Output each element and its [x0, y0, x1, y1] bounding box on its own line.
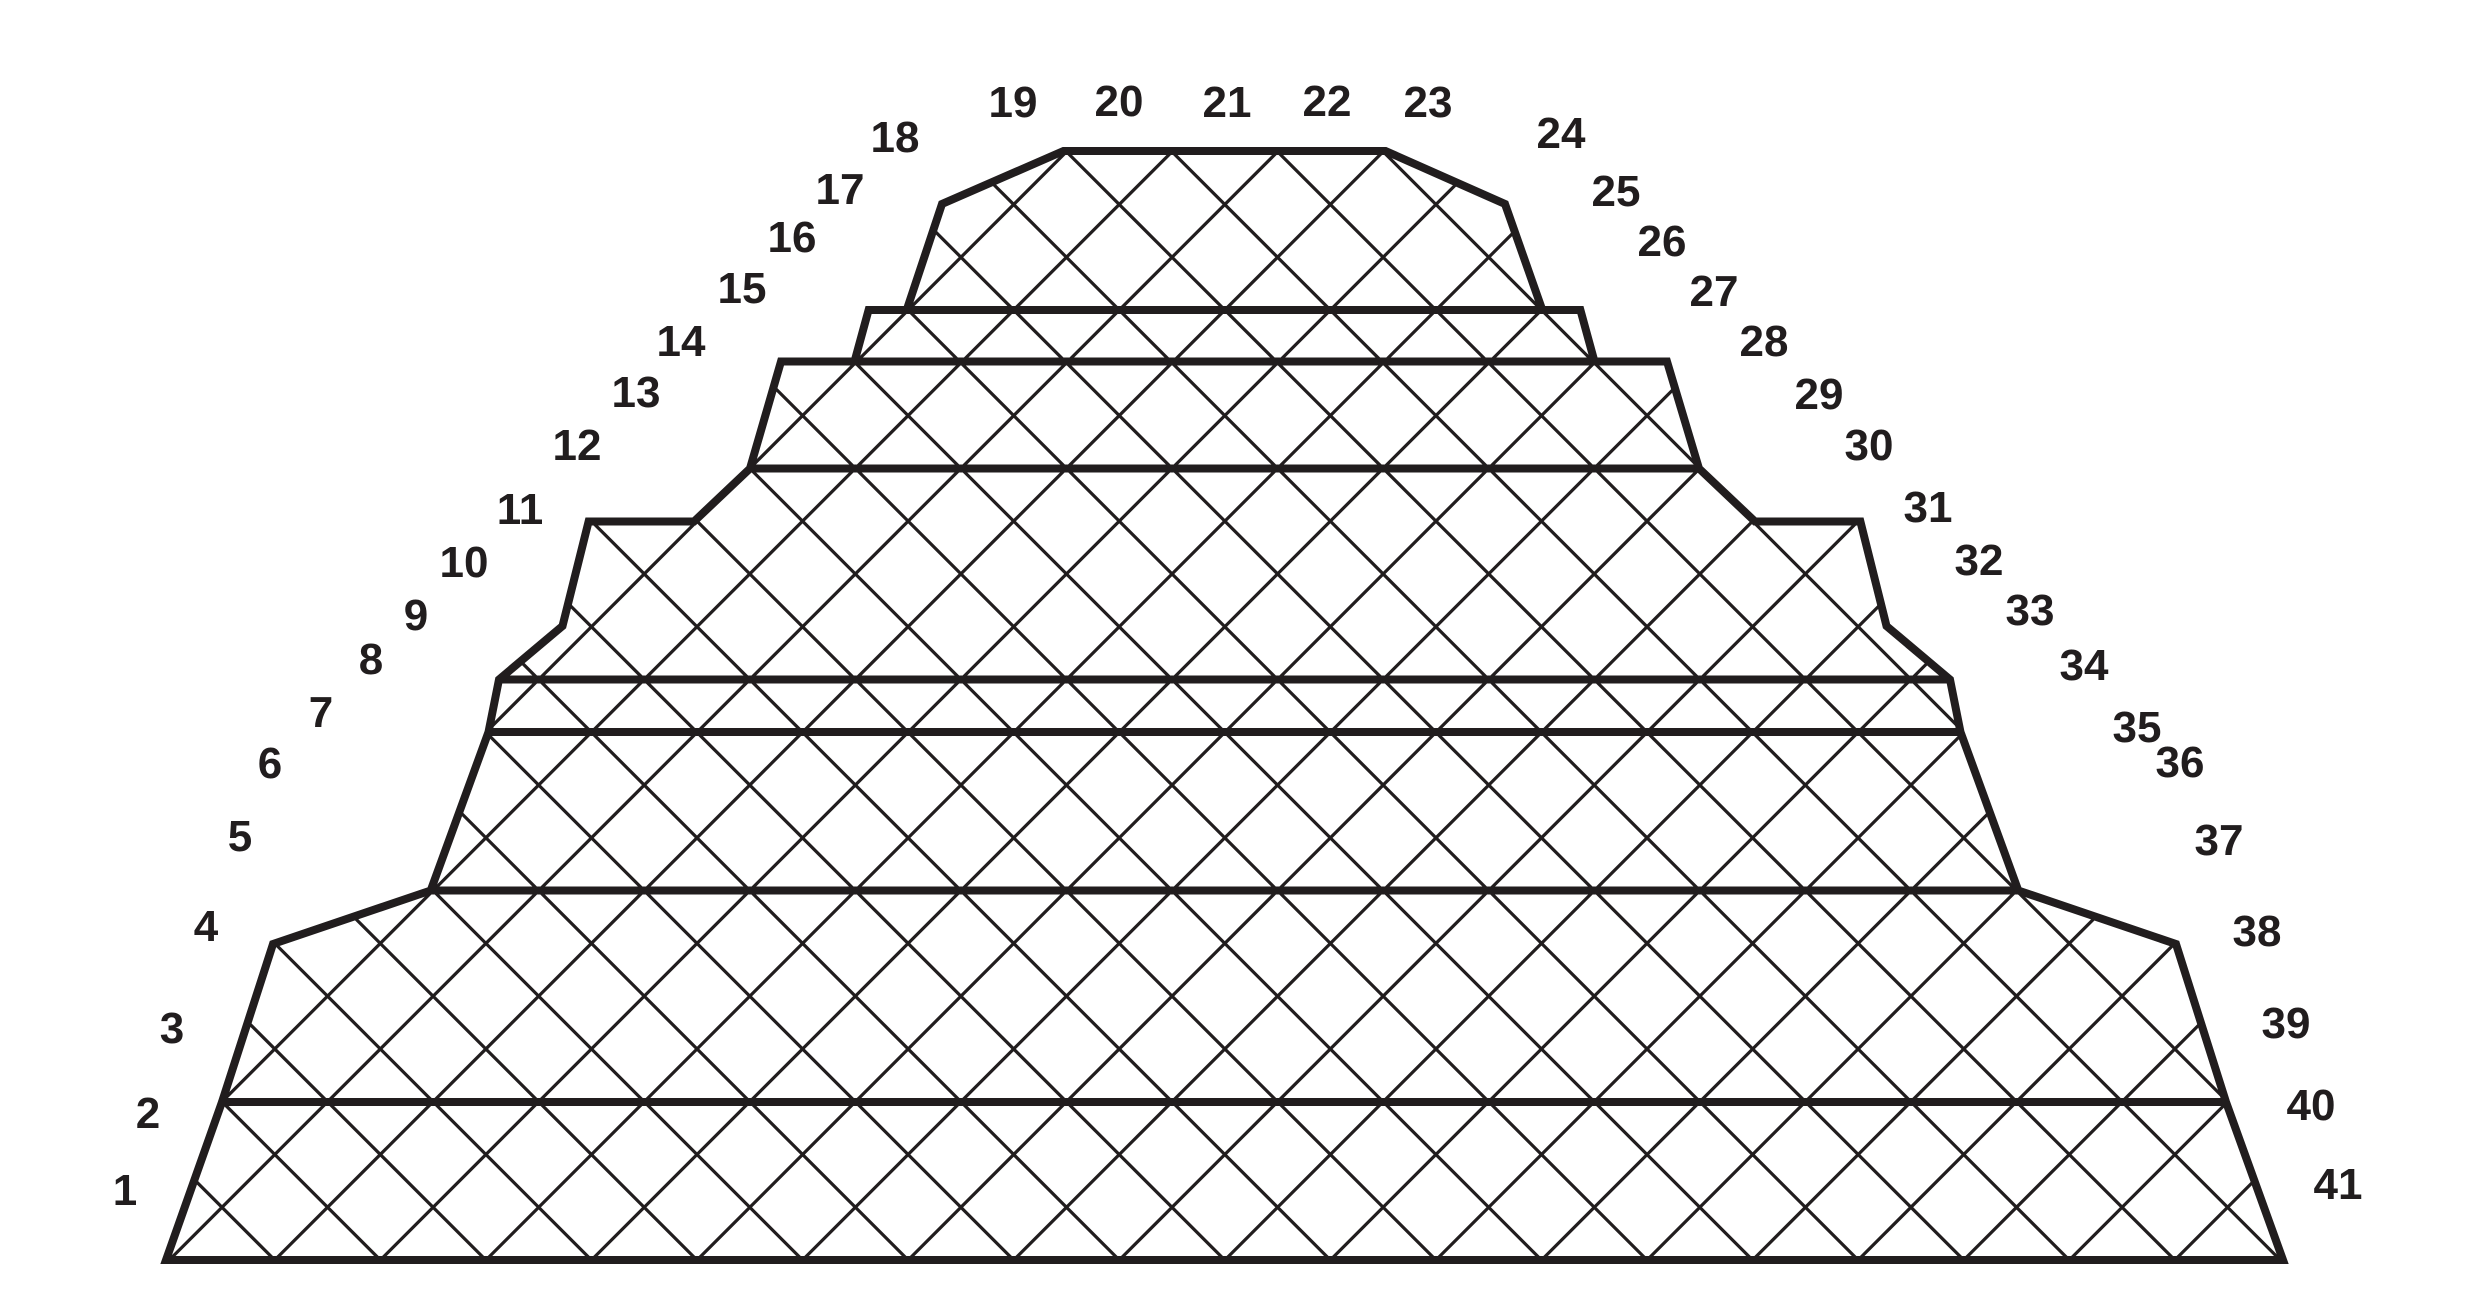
svg-text:13: 13 [612, 368, 661, 417]
svg-text:11: 11 [497, 485, 544, 534]
svg-text:20: 20 [1095, 77, 1144, 126]
svg-text:39: 39 [2262, 999, 2311, 1048]
svg-text:9: 9 [404, 591, 428, 640]
svg-text:3: 3 [160, 1004, 184, 1053]
svg-text:33: 33 [2006, 586, 2055, 635]
svg-text:28: 28 [1740, 317, 1789, 366]
svg-text:8: 8 [359, 635, 383, 684]
svg-text:22: 22 [1303, 77, 1352, 126]
svg-text:37: 37 [2195, 816, 2244, 865]
svg-text:26: 26 [1638, 217, 1687, 266]
svg-text:40: 40 [2287, 1081, 2336, 1130]
svg-text:24: 24 [1537, 109, 1586, 158]
svg-text:14: 14 [657, 317, 706, 366]
svg-text:4: 4 [194, 902, 219, 951]
svg-text:21: 21 [1203, 78, 1252, 127]
svg-text:19: 19 [989, 78, 1038, 127]
svg-text:27: 27 [1690, 267, 1739, 316]
svg-text:1: 1 [113, 1166, 137, 1215]
svg-text:10: 10 [440, 538, 489, 587]
svg-text:17: 17 [816, 165, 865, 214]
svg-text:34: 34 [2060, 641, 2109, 690]
svg-text:25: 25 [1592, 167, 1641, 216]
svg-text:12: 12 [553, 421, 602, 470]
svg-text:5: 5 [228, 812, 252, 861]
svg-text:35: 35 [2113, 703, 2162, 752]
svg-text:18: 18 [871, 113, 920, 162]
svg-text:2: 2 [136, 1089, 160, 1138]
svg-text:16: 16 [768, 213, 817, 262]
svg-text:23: 23 [1404, 78, 1453, 127]
svg-text:38: 38 [2233, 907, 2282, 956]
svg-text:6: 6 [258, 739, 282, 788]
svg-text:36: 36 [2156, 738, 2205, 787]
svg-text:31: 31 [1904, 483, 1953, 532]
svg-text:41: 41 [2314, 1160, 2363, 1209]
svg-text:7: 7 [309, 688, 333, 737]
svg-text:15: 15 [718, 264, 767, 313]
svg-text:29: 29 [1795, 370, 1844, 419]
svg-text:30: 30 [1845, 421, 1894, 470]
svg-text:32: 32 [1955, 536, 2004, 585]
